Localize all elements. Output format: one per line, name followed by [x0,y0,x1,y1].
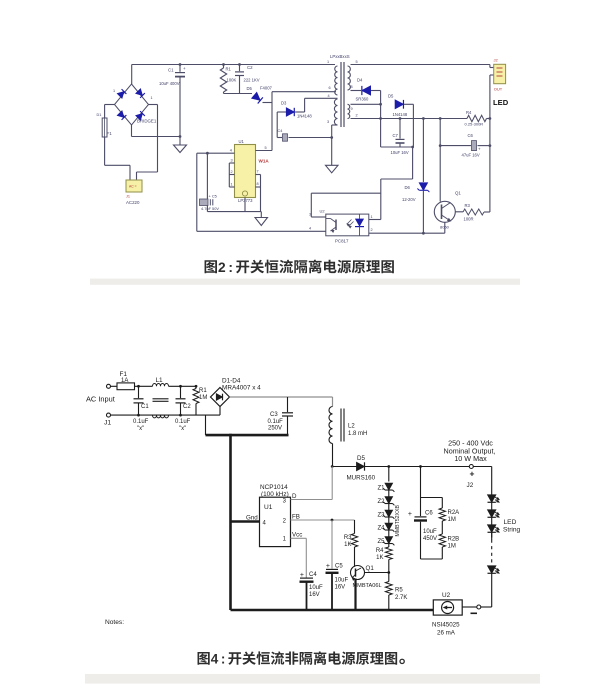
svg-text:10uF: 10uF [309,585,323,591]
svg-text:C4: C4 [278,129,283,133]
svg-text:5: 5 [265,146,267,150]
svg-text:Q1: Q1 [366,565,375,572]
svg-text:+ C5: + C5 [209,194,217,199]
svg-text:1.8 mH: 1.8 mH [348,431,367,437]
svg-text:D1: D1 [97,113,102,117]
svg-text:MMBT52XXB: MMBT52XXB [395,505,401,537]
svg-text:1: 1 [113,89,115,93]
svg-text:AC =: AC = [129,185,137,189]
svg-text:+: + [478,147,481,152]
svg-text:R3: R3 [465,203,471,208]
svg-text:MURS160: MURS160 [347,475,376,482]
svg-text:D5: D5 [357,455,365,462]
svg-text:F1: F1 [120,371,128,378]
svg-text:BRIDGE1: BRIDGE1 [137,119,157,124]
svg-text:F4007: F4007 [260,86,273,91]
svg-text:OUT: OUT [494,87,503,92]
svg-text:U2: U2 [320,209,326,214]
svg-text:R1: R1 [226,67,232,72]
svg-text:1N4148: 1N4148 [297,114,312,119]
svg-text:100R: 100R [464,217,474,222]
svg-text:10uF 16V: 10uF 16V [391,150,409,155]
svg-text:String: String [503,527,521,534]
svg-text:NCP1014: NCP1014 [260,484,288,491]
svg-text:L1: L1 [156,377,164,384]
svg-text:Z4: Z4 [377,526,385,532]
svg-text:J1: J1 [104,420,111,427]
svg-text:4: 4 [328,94,330,98]
svg-text:+: + [326,563,330,570]
svg-text:L2: L2 [348,424,355,430]
svg-text:D4: D4 [357,78,363,83]
svg-text:AC220: AC220 [126,200,140,205]
svg-text:8: 8 [257,182,259,186]
svg-text:1M: 1M [448,517,456,523]
svg-text:C1: C1 [168,68,174,73]
svg-text:0.1uF: 0.1uF [175,419,191,425]
svg-text:Gnd: Gnd [246,515,258,522]
svg-text:0.1uF: 0.1uF [268,419,284,425]
svg-text:10uF: 10uF [423,529,437,535]
svg-text:PC817: PC817 [335,239,349,244]
svg-text:222 1KV: 222 1KV [244,78,260,83]
svg-text:D5: D5 [247,86,253,91]
svg-text:100K: 100K [227,78,237,83]
svg-text:J2: J2 [467,482,474,489]
svg-text:D1-D4: D1-D4 [222,377,241,384]
svg-text:SR360: SR360 [356,97,369,102]
svg-text:1K: 1K [376,555,383,561]
svg-text:4: 4 [309,227,311,231]
svg-text:1A: 1A [121,378,128,384]
svg-text:Z3: Z3 [377,513,385,519]
svg-text:F1: F1 [107,131,113,136]
svg-text:0.1uF: 0.1uF [133,419,149,425]
svg-text:3: 3 [327,120,329,124]
svg-text:W1A: W1A [259,159,270,164]
svg-text:7: 7 [257,170,259,174]
svg-text:R2B: R2B [448,537,460,543]
svg-text:R4: R4 [466,110,472,115]
svg-text:Z5: Z5 [377,539,385,545]
svg-text:1M: 1M [199,395,207,401]
svg-text:+: + [408,511,412,518]
svg-text:3: 3 [309,213,311,217]
svg-text:1: 1 [151,96,153,100]
svg-text:R4: R4 [376,548,384,554]
svg-text:1: 1 [327,60,329,64]
svg-text:R2A: R2A [448,510,460,516]
svg-text:C7: C7 [393,133,399,138]
svg-text:R5: R5 [395,588,403,594]
svg-text:J1: J1 [126,195,130,199]
svg-text:C2: C2 [247,65,253,70]
svg-text:+: + [300,572,304,579]
svg-text:2: 2 [218,260,226,275]
svg-text:10uF: 10uF [335,578,349,584]
svg-text:D: D [292,493,297,500]
svg-text:LED: LED [504,519,517,526]
svg-text:12-20V: 12-20V [402,197,416,202]
svg-text:Notes:: Notes: [105,619,124,626]
svg-text:3: 3 [231,159,233,163]
svg-text:R3: R3 [344,535,352,541]
svg-text:4: 4 [230,149,232,153]
svg-text:1M: 1M [448,544,456,550]
svg-text:D6: D6 [405,185,411,190]
svg-text:U2: U2 [442,592,451,599]
svg-text:1N4148: 1N4148 [393,112,408,117]
svg-text:0.25-300R: 0.25-300R [465,122,484,127]
svg-text:"x": "x" [179,426,186,432]
svg-text:5: 5 [356,60,358,64]
svg-text:Z1: Z1 [377,486,385,492]
svg-text:6: 6 [329,86,331,90]
svg-text:1: 1 [231,183,233,187]
svg-text:8: 8 [351,85,353,89]
svg-text:C3: C3 [270,412,278,418]
svg-text:47uF 16V: 47uF 16V [462,153,480,158]
svg-text:Vcc: Vcc [292,532,302,539]
svg-text:MMBTA06L: MMBTA06L [353,583,382,589]
svg-text:C4: C4 [309,572,317,578]
svg-text:250V: 250V [268,426,282,432]
svg-text:10 W Max: 10 W Max [454,454,487,463]
svg-text:U1: U1 [264,504,273,511]
svg-text:4.7uF 50V: 4.7uF 50V [201,206,219,211]
svg-text:C6: C6 [468,133,474,138]
svg-text:2: 2 [371,228,373,232]
svg-text:(100 kHz): (100 kHz) [261,491,289,498]
svg-text:4: 4 [211,652,219,667]
svg-text:NSI45025: NSI45025 [432,622,460,629]
svg-text:R1: R1 [199,388,207,394]
svg-text:450V: 450V [423,536,437,542]
svg-text:FB: FB [292,513,300,520]
svg-text:AC Input: AC Input [86,395,115,404]
svg-text:16V: 16V [309,592,320,598]
svg-text:9: 9 [351,107,353,111]
svg-text:C6: C6 [425,511,433,517]
svg-text:D3: D3 [281,101,287,106]
svg-text:C5: C5 [335,564,343,570]
svg-text::: : [228,260,233,275]
svg-text:+: + [470,469,475,479]
svg-text:Q1: Q1 [455,191,461,196]
svg-text:LPxxBxxS: LPxxBxxS [330,54,350,59]
svg-text:16V: 16V [335,585,346,591]
svg-text:2: 2 [231,170,233,174]
svg-text:D5: D5 [388,94,394,99]
svg-text::: : [221,652,226,667]
svg-text:U1: U1 [239,139,245,144]
svg-text:2: 2 [356,114,358,118]
svg-text:"x": "x" [137,426,144,432]
svg-text:10uF 400V: 10uF 400V [159,81,180,86]
svg-text:Z2: Z2 [377,499,385,505]
svg-text:2.7K: 2.7K [395,595,407,601]
svg-text:1K: 1K [344,542,351,548]
svg-text:1: 1 [371,215,373,219]
svg-text:LED: LED [493,98,509,107]
svg-text:+: + [183,66,186,71]
svg-text:C1: C1 [141,404,149,410]
svg-text:MRA4007 x 4: MRA4007 x 4 [222,385,261,392]
svg-text:8050: 8050 [440,225,450,230]
svg-text:26 mA: 26 mA [437,629,456,636]
svg-text:C2: C2 [183,404,191,410]
